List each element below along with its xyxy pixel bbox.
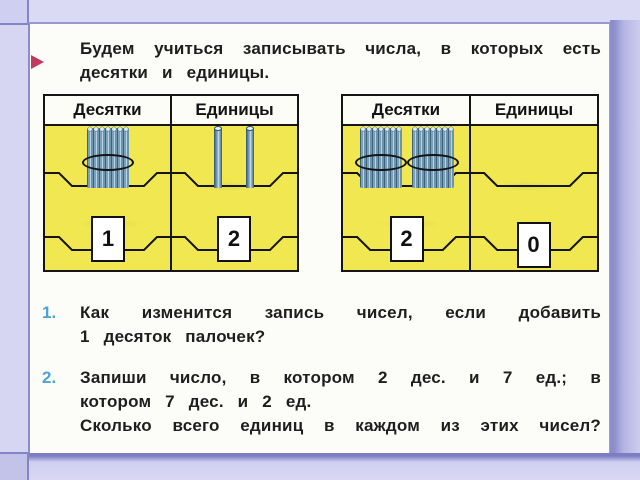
stick-bundle: [412, 128, 454, 188]
frame-right-band: [610, 20, 640, 453]
place-value-table-2: Десятки Единицы 2 0: [341, 94, 599, 272]
table-2-dozens-card: 2: [390, 216, 424, 262]
table-1-header-dozens: Десятки: [45, 96, 172, 124]
table-1-units-card: 2: [217, 216, 251, 262]
frame-left-strip: [0, 22, 28, 453]
question-1-line-2: 1 десяток палочек?: [80, 325, 601, 349]
stick-bundle: [87, 128, 129, 188]
table-1-body: 1 2: [45, 126, 297, 270]
table-1-dozens-bundles: [45, 128, 171, 188]
table-1-unit-sticks: [171, 128, 297, 188]
frame-top-strip: [0, 0, 640, 22]
question-1-number: 1.: [42, 301, 76, 325]
single-stick: [246, 128, 254, 188]
table-2-units-card: 0: [517, 222, 551, 268]
place-value-table-1: Десятки Единицы 1 2: [43, 94, 299, 272]
table-2-body: 2 0: [343, 126, 597, 270]
intro-text: Будем учиться записывать числа, в которы…: [80, 37, 601, 85]
frame-corner-top-left: [0, 0, 29, 25]
table-1-dozens-card: 1: [91, 216, 125, 262]
frame-bottom-band: [0, 453, 640, 480]
stick-bundle: [360, 128, 402, 188]
red-arrow-marker: [31, 55, 44, 69]
frame-corner-bottom-left: [0, 452, 29, 480]
column-divider: [469, 126, 471, 270]
table-1-header-units: Единицы: [172, 96, 297, 124]
question-1-line-1: Как изменится запись чисел, если добавит…: [80, 301, 601, 325]
question-2-line-1: Запиши число, в котором 2 дес. и 7 ед.; …: [80, 366, 601, 390]
slide-frame: Будем учиться записывать числа, в которы…: [0, 0, 640, 480]
table-2-header-dozens: Десятки: [343, 96, 471, 124]
question-2-text: Запиши число, в котором 2 дес. и 7 ед.; …: [80, 366, 601, 438]
question-1-text: Как изменится запись чисел, если добавит…: [80, 301, 601, 349]
intro-line-2: десятки и единицы.: [80, 61, 601, 85]
column-divider: [170, 126, 172, 270]
question-2-number: 2.: [42, 366, 76, 390]
table-1-header: Десятки Единицы: [45, 96, 297, 126]
table-2-header-units: Единицы: [471, 96, 597, 124]
table-2-dozens-bundles: [343, 128, 470, 188]
single-stick: [214, 128, 222, 188]
intro-line-1: Будем учиться записывать числа, в которы…: [80, 37, 601, 61]
table-2-header: Десятки Единицы: [343, 96, 597, 126]
textbook-page: Будем учиться записывать числа, в которы…: [28, 22, 610, 453]
question-2-line-3: Сколько всего единиц в каждом из этих чи…: [80, 414, 601, 438]
question-2-line-2: котором 7 дес. и 2 ед.: [80, 390, 601, 414]
